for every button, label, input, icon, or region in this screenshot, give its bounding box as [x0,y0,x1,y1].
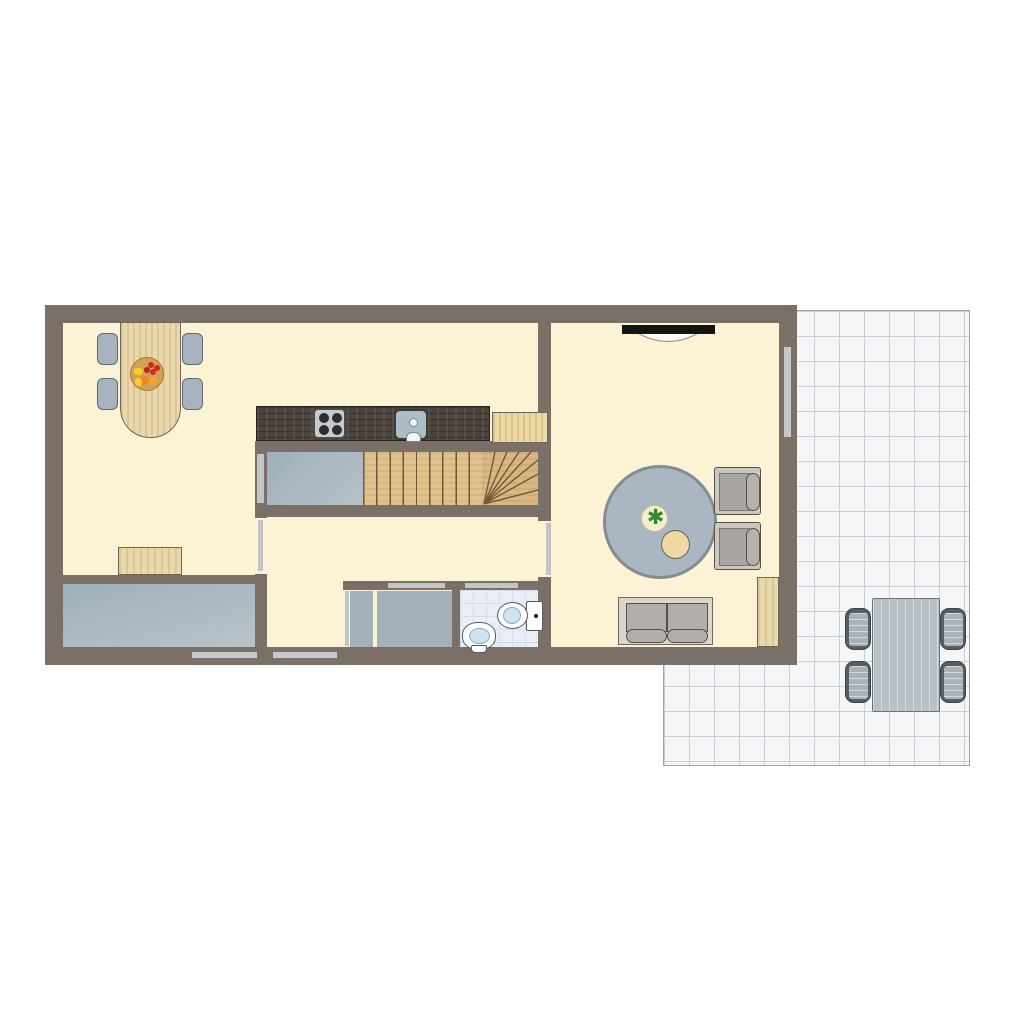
wall-bath-storage-divider [452,590,460,647]
storage-cabinet-small [350,591,373,647]
kitchen-counter [256,406,490,441]
window-right-wall [784,347,791,437]
window-bottom-wall [273,652,337,658]
living-sideboard [757,577,779,647]
fruit-bowl [130,357,164,391]
stove [313,408,346,439]
chair-cushion [849,666,868,699]
fruit-lemon [135,378,142,386]
burner [319,413,329,423]
washbasin-tap [471,645,487,653]
sofa-back-cushion [626,603,667,632]
winder-tread-lines [482,452,538,505]
plant-pot: ✱ [641,505,668,532]
armchair [714,467,761,515]
outdoor-chair [845,661,871,703]
bathroom-door-opening [465,583,518,588]
storage-door-leaf [345,591,349,646]
living-room-door-leaf [546,523,551,575]
burner [319,425,329,435]
armchair [714,522,761,570]
chair-cushion [944,613,963,646]
outdoor-table [872,598,940,712]
storage-door-opening [388,583,445,588]
wall-corridor-bottom [255,505,538,517]
burner [332,413,342,423]
wall-bath-storage-top [343,581,551,590]
chair-cushion [944,666,963,699]
sink-drain [409,418,418,427]
dining-chair [97,333,118,365]
corridor-end-door [257,454,264,503]
burner [332,425,342,435]
toilet-bowl [497,602,528,629]
outdoor-chair [940,661,966,703]
chair-cushion [849,613,868,646]
dining-chair [97,378,118,410]
sofa-seat-cushion [667,629,708,643]
staircase-winder-treads [482,452,538,505]
wall-dining-bottom [45,575,267,584]
armchair-backrest [746,473,760,511]
stair-landing [267,452,363,505]
sofa [618,597,713,645]
washbasin-inner [469,628,490,644]
wall-tv [622,325,715,334]
toilet-flush-button [534,614,538,618]
fruit-lemon [134,368,143,375]
toilet-bowl-inner [503,607,521,624]
kitchen-sink [394,409,428,440]
plant-icon: ✱ [643,505,668,530]
staircase-straight-treads [363,452,482,505]
outdoor-chair [845,608,871,650]
sofa-back-cushion [667,603,708,632]
dining-chair [182,378,203,410]
armchair-backrest [746,528,760,566]
kitchen-cabinet [492,412,548,443]
floor-plan: ✱ [0,0,1024,1024]
sink-faucet [406,432,421,442]
outdoor-chair [940,608,966,650]
window-bottom-wall [192,652,257,658]
dining-chair [182,333,203,365]
utility-room-floor [63,584,255,647]
hallway-door-leaf [258,520,263,571]
dining-sideboard [118,547,182,575]
wall-living-divider [538,323,551,647]
sofa-seat-cushion [626,629,667,643]
fruit-orange [149,377,157,385]
fruit-cherry [150,369,156,375]
side-table [661,530,690,559]
storage-cabinet-large [377,591,452,647]
